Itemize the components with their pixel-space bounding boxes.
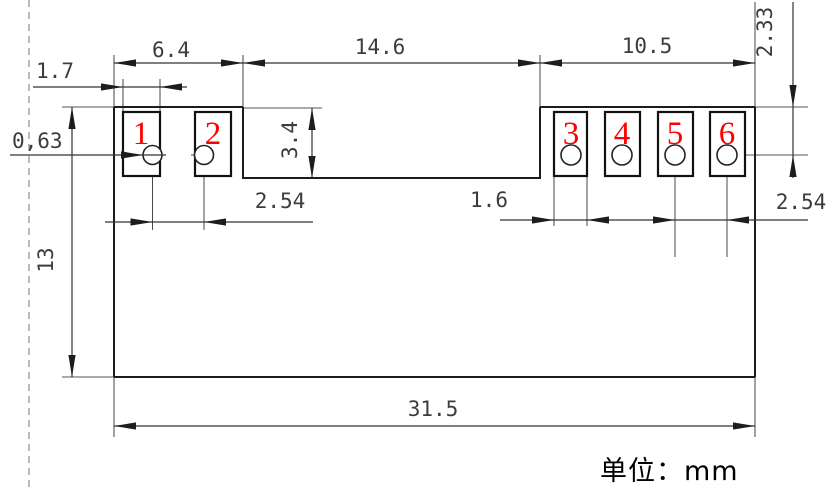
- dimension-texts: 6.4 14.6 10.5 1.7 0,63 13 3.4 2.33 2.54 …: [12, 7, 826, 421]
- unit-note: 单位：mm: [600, 456, 739, 487]
- pin-number-2: 2: [205, 116, 222, 152]
- footprint-drawing-page: 6.4 14.6 10.5 1.7 0,63 13 3.4 2.33 2.54 …: [0, 0, 836, 490]
- dim-text-left-pad-width: 1.7: [36, 59, 74, 83]
- dim-text-notch-depth: 3.4: [278, 121, 302, 159]
- arrowhead: [101, 83, 123, 90]
- dim-text-left-hole-pitch: 2.54: [255, 189, 306, 213]
- dim-text-body-height: 13: [34, 247, 58, 272]
- dimension-drawing-canvas: 6.4 14.6 10.5 1.7 0,63 13 3.4 2.33 2.54 …: [0, 0, 836, 490]
- arrowhead: [131, 218, 153, 225]
- arrowhead: [68, 355, 75, 377]
- dim-text-body-width: 31.5: [408, 397, 459, 421]
- arrowhead: [540, 59, 562, 66]
- arrowhead: [587, 216, 609, 223]
- arrowhead: [160, 83, 182, 90]
- dim-text-right-hole-pitch: 2.54: [776, 190, 827, 214]
- arrowhead: [789, 85, 796, 107]
- arrowhead: [518, 59, 540, 66]
- arrowhead: [727, 216, 749, 223]
- arrowhead: [733, 59, 755, 66]
- dim-text-left-section-width: 6.4: [152, 38, 190, 62]
- dim-text-right-pad-width: 1.6: [470, 188, 508, 212]
- dim-text-right-section-width: 10.5: [622, 34, 673, 58]
- arrowhead: [204, 218, 226, 225]
- arrowhead: [733, 422, 755, 429]
- arrowhead: [308, 108, 315, 130]
- arrowhead: [789, 155, 796, 177]
- terminal-holes: [143, 145, 737, 165]
- pin-number-5: 5: [667, 116, 684, 152]
- arrowhead: [221, 59, 243, 66]
- dim-text-hole-to-top-edge: 2.33: [753, 7, 777, 58]
- arrowhead: [114, 59, 136, 66]
- pin-number-1: 1: [133, 116, 150, 152]
- pin-number-3: 3: [563, 116, 580, 152]
- pin-number-6: 6: [719, 116, 736, 152]
- dim-text-hole-offset: 0,63: [12, 129, 63, 153]
- arrowhead: [308, 156, 315, 178]
- arrowhead: [653, 216, 675, 223]
- arrowhead: [114, 422, 136, 429]
- dim-text-middle-section-width: 14.6: [355, 35, 406, 59]
- arrowhead: [532, 216, 554, 223]
- arrowhead: [68, 107, 75, 129]
- pin-number-4: 4: [614, 116, 631, 152]
- arrowhead: [243, 59, 265, 66]
- dimension-lines: [10, 2, 808, 426]
